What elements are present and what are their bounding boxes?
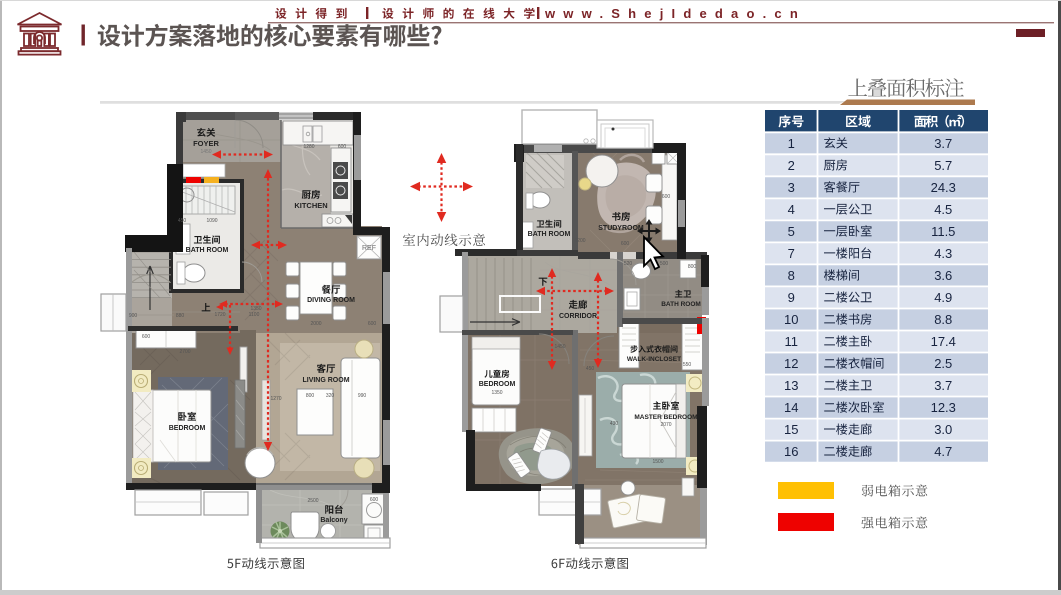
svg-text:CORRIDOR: CORRIDOR — [559, 313, 597, 320]
svg-text:1350: 1350 — [250, 306, 261, 312]
svg-text:8.8: 8.8 — [934, 312, 952, 327]
svg-text:320: 320 — [326, 393, 335, 399]
svg-text:600: 600 — [368, 321, 377, 327]
svg-text:1090: 1090 — [206, 218, 217, 224]
svg-text:600: 600 — [142, 334, 151, 340]
svg-text:2700: 2700 — [179, 349, 190, 355]
svg-text:REF: REF — [362, 245, 376, 252]
svg-text:BEDROOM: BEDROOM — [169, 425, 206, 432]
svg-text:1500: 1500 — [652, 459, 663, 465]
svg-text:www.ShejIdedao.cn: www.ShejIdedao.cn — [544, 6, 806, 21]
svg-text:2000: 2000 — [310, 321, 321, 327]
svg-text:5: 5 — [788, 224, 795, 239]
svg-text:12: 12 — [784, 356, 798, 371]
svg-text:2.5: 2.5 — [934, 356, 952, 371]
svg-text:3.7: 3.7 — [934, 378, 952, 393]
svg-text:4.5: 4.5 — [934, 202, 952, 217]
svg-text:3.6: 3.6 — [934, 268, 952, 283]
svg-text:11: 11 — [785, 334, 799, 349]
svg-text:Balcony: Balcony — [320, 517, 347, 524]
svg-text:3.0: 3.0 — [934, 422, 952, 437]
svg-text:1450: 1450 — [200, 149, 211, 155]
svg-text:LIVING ROOM: LIVING ROOM — [302, 377, 349, 384]
svg-text:STUDYROOM: STUDYROOM — [598, 225, 644, 232]
svg-text:800: 800 — [306, 393, 315, 399]
svg-text:10: 10 — [784, 312, 798, 327]
svg-text:FOYER: FOYER — [193, 139, 219, 148]
svg-text:11.5: 11.5 — [931, 224, 955, 239]
svg-text:2070: 2070 — [660, 422, 671, 428]
svg-text:15: 15 — [784, 422, 798, 437]
svg-text:1280: 1280 — [303, 144, 314, 150]
svg-text:14: 14 — [784, 400, 798, 415]
svg-text:1270: 1270 — [270, 396, 281, 402]
svg-text:17.4: 17.4 — [931, 334, 956, 349]
svg-text:MASTER BEDROOM: MASTER BEDROOM — [634, 414, 697, 421]
svg-text:BEDROOM: BEDROOM — [479, 381, 516, 388]
svg-text:3: 3 — [788, 180, 795, 195]
svg-text:3.7: 3.7 — [934, 136, 952, 151]
svg-text:430: 430 — [610, 421, 619, 427]
svg-text:1: 1 — [788, 136, 795, 151]
svg-text:BATH ROOM: BATH ROOM — [186, 247, 229, 254]
svg-text:1100: 1100 — [249, 312, 260, 318]
svg-text:4.9: 4.9 — [934, 290, 952, 305]
svg-text:KITCHEN: KITCHEN — [294, 201, 327, 210]
svg-text:BATH ROOM: BATH ROOM — [661, 301, 701, 308]
svg-text:4.7: 4.7 — [934, 444, 952, 459]
svg-text:600: 600 — [662, 194, 671, 200]
svg-text:13: 13 — [784, 378, 798, 393]
svg-text:1350: 1350 — [491, 390, 502, 396]
svg-text:9: 9 — [788, 290, 795, 305]
svg-text:520: 520 — [624, 261, 633, 267]
svg-text:600: 600 — [621, 241, 630, 247]
svg-text:12.3: 12.3 — [931, 400, 956, 415]
svg-text:500: 500 — [660, 261, 669, 267]
svg-text:5.7: 5.7 — [934, 158, 952, 173]
svg-text:4: 4 — [788, 202, 795, 217]
svg-text:800: 800 — [688, 264, 697, 270]
svg-text:WALK-INCLOSET: WALK-INCLOSET — [627, 356, 681, 363]
svg-text:1720: 1720 — [214, 312, 225, 318]
svg-text:900: 900 — [129, 313, 138, 319]
svg-text:4.3: 4.3 — [934, 246, 952, 261]
svg-text:2: 2 — [788, 158, 795, 173]
svg-text:450: 450 — [586, 366, 595, 372]
svg-text:600: 600 — [338, 144, 347, 150]
svg-text:24.3: 24.3 — [931, 180, 956, 195]
svg-text:550: 550 — [683, 362, 692, 368]
svg-text:2500: 2500 — [307, 498, 318, 504]
svg-text:600: 600 — [370, 497, 379, 503]
svg-text:990: 990 — [358, 393, 367, 399]
svg-text:16: 16 — [784, 444, 798, 459]
svg-text:450: 450 — [178, 218, 187, 224]
svg-text:1450: 1450 — [554, 344, 565, 350]
svg-text:2200: 2200 — [574, 238, 585, 244]
svg-text:7: 7 — [788, 246, 795, 261]
svg-text:DIVING ROOM: DIVING ROOM — [307, 297, 355, 304]
svg-text:BATH ROOM: BATH ROOM — [528, 231, 571, 238]
svg-text:880: 880 — [176, 313, 185, 319]
svg-text:8: 8 — [788, 268, 795, 283]
